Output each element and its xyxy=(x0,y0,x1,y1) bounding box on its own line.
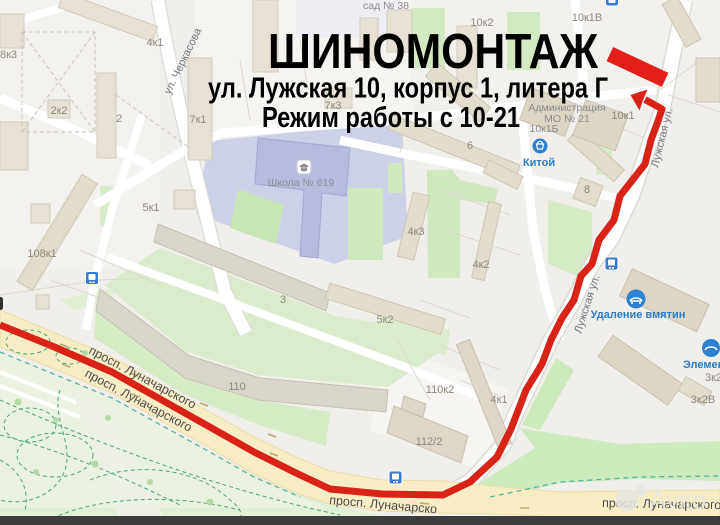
svg-text:5к2: 5к2 xyxy=(376,314,393,326)
svg-text:Китой: Китой xyxy=(523,157,555,169)
svg-text:110: 110 xyxy=(228,381,246,393)
svg-text:Avito: Avito xyxy=(649,485,706,515)
svg-text:3к2: 3к2 xyxy=(705,372,720,384)
svg-text:сад № 38: сад № 38 xyxy=(363,0,409,12)
svg-text:5к1: 5к1 xyxy=(142,202,159,214)
svg-text:ШИНОМОНТАЖ: ШИНОМОНТАЖ xyxy=(268,25,599,79)
svg-text:3: 3 xyxy=(280,294,286,306)
svg-text:2к2: 2к2 xyxy=(50,105,67,117)
svg-text:10к1В: 10к1В xyxy=(572,12,603,24)
svg-text:4к1: 4к1 xyxy=(146,37,163,49)
svg-text:10к1: 10к1 xyxy=(611,110,634,122)
svg-text:110к2: 110к2 xyxy=(426,384,454,396)
svg-text:Элемент: Элемент xyxy=(683,359,720,371)
svg-text:Школа № 619: Школа № 619 xyxy=(268,177,335,189)
svg-text:8: 8 xyxy=(584,184,590,196)
svg-text:4к1: 4к1 xyxy=(490,394,507,406)
svg-text:Режим работы с 10-21: Режим работы с 10-21 xyxy=(262,102,520,134)
svg-text:Удаление вмятин: Удаление вмятин xyxy=(591,309,686,321)
svg-text:7к1: 7к1 xyxy=(189,114,206,126)
svg-text:4к3: 4к3 xyxy=(407,226,424,238)
svg-text:10к1Б: 10к1Б xyxy=(529,123,558,135)
svg-text:6: 6 xyxy=(467,140,473,152)
svg-text:8к3: 8к3 xyxy=(0,49,17,61)
svg-text:3к2В: 3к2В xyxy=(691,394,715,406)
svg-text:108к1: 108к1 xyxy=(27,248,56,260)
svg-text:112/2: 112/2 xyxy=(416,436,443,448)
svg-text:ул. Лужская 10, корпус 1, лите: ул. Лужская 10, корпус 1, литера Г xyxy=(208,73,608,105)
svg-text:2: 2 xyxy=(116,113,122,125)
svg-text:4к2: 4к2 xyxy=(472,259,489,271)
